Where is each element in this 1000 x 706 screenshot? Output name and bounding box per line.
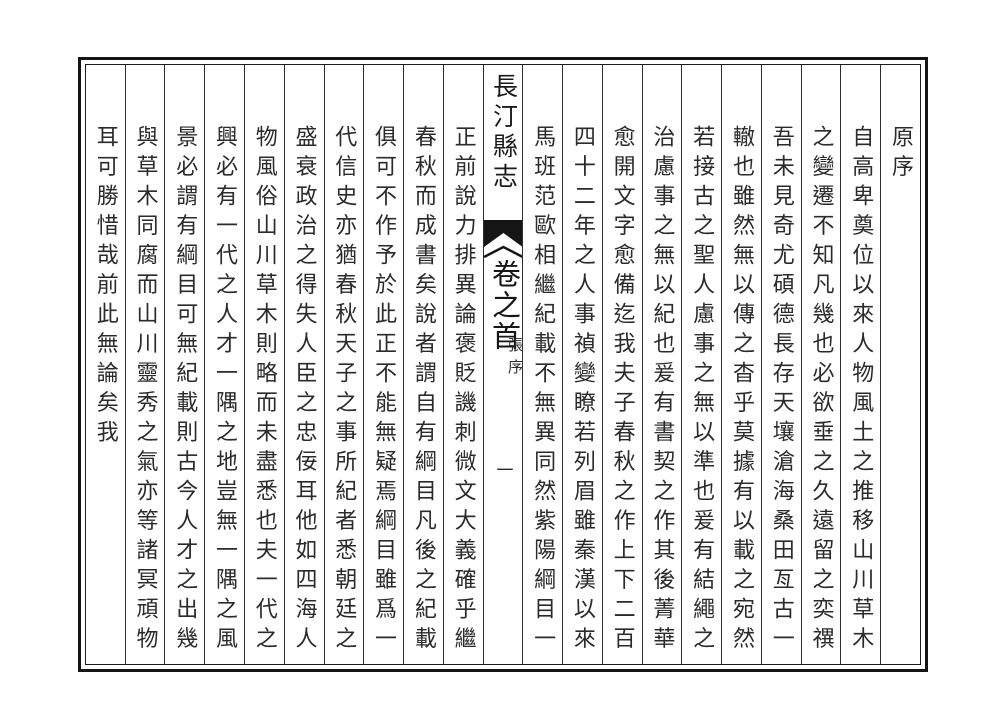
section-label: 張序 [506, 337, 521, 381]
banxin-title-column: 長汀縣志 卷之首 張序 一 [483, 65, 523, 664]
text-column: 治慮事之無以紀也爰有書契之作其後菁華 [642, 65, 682, 664]
text-column: 自高卑奠位以來人物風土之推移山川草木 [840, 65, 880, 664]
book-title: 長汀縣志 [490, 73, 515, 193]
text-column: 吾未見奇尤碩德長存天壤滄海桑田亙古一 [761, 65, 801, 664]
text-column: 之變遷不知凡幾也必欲垂之久遠留之奕禩 [801, 65, 841, 664]
text-column: 與草木同腐而山川靈秀之氣亦等諸冥頑物 [125, 65, 165, 664]
text-column: 景必謂有綱目可無紀載則古今人才之出幾 [164, 65, 204, 664]
text-column: 正前說力排異論褒貶譏刺微文大義確乎繼 [443, 65, 483, 664]
text-column: 代信史亦猶春秋天子之事所紀者悉朝廷之 [324, 65, 364, 664]
text-column: 馬班范歐相繼紀載不無異同然紫陽綱目一 [522, 65, 562, 664]
fishtail-ornament-icon [484, 220, 523, 260]
gazetteer-page: 原序 自高卑奠位以來人物風土之推移山川草木 之變遷不知凡幾也必欲垂之久遠留之奕禩… [0, 0, 1000, 706]
text-column: 四十二年之人事禎變瞭若列眉雖秦漢以來 [562, 65, 602, 664]
text-column: 物風俗山川草木則略而未盡悉也夫一代之 [244, 65, 284, 664]
preface-header-column: 原序 [880, 65, 920, 664]
text-column: 若接古之聖人慮事之無以準也爰有結繩之 [681, 65, 721, 664]
text-column: 盛衰政治之得失人臣之忠佞耳他如四海人 [284, 65, 324, 664]
text-column: 俱可不作予於此正不能無疑焉綱目雖爲一 [363, 65, 403, 664]
text-column: 轍也雖然無以傳之杳乎莫據有以載之宛然 [721, 65, 761, 664]
text-column: 興必有一代之人才一隅之地豈無一隅之風 [204, 65, 244, 664]
text-column: 愈開文字愈備迄我夫子春秋之作上下二百 [602, 65, 642, 664]
text-grid: 原序 自高卑奠位以來人物風土之推移山川草木 之變遷不知凡幾也必欲垂之久遠留之奕禩… [85, 64, 921, 665]
page-border-frame: 原序 自高卑奠位以來人物風土之推移山川草木 之變遷不知凡幾也必欲垂之久遠留之奕禩… [78, 57, 928, 672]
text-column: 耳可勝惜哉前此無論矣我 [86, 65, 125, 664]
text-column: 春秋而成書矣說者謂自有綱目凡後之紀載 [403, 65, 443, 664]
page-number: 一 [494, 461, 511, 478]
